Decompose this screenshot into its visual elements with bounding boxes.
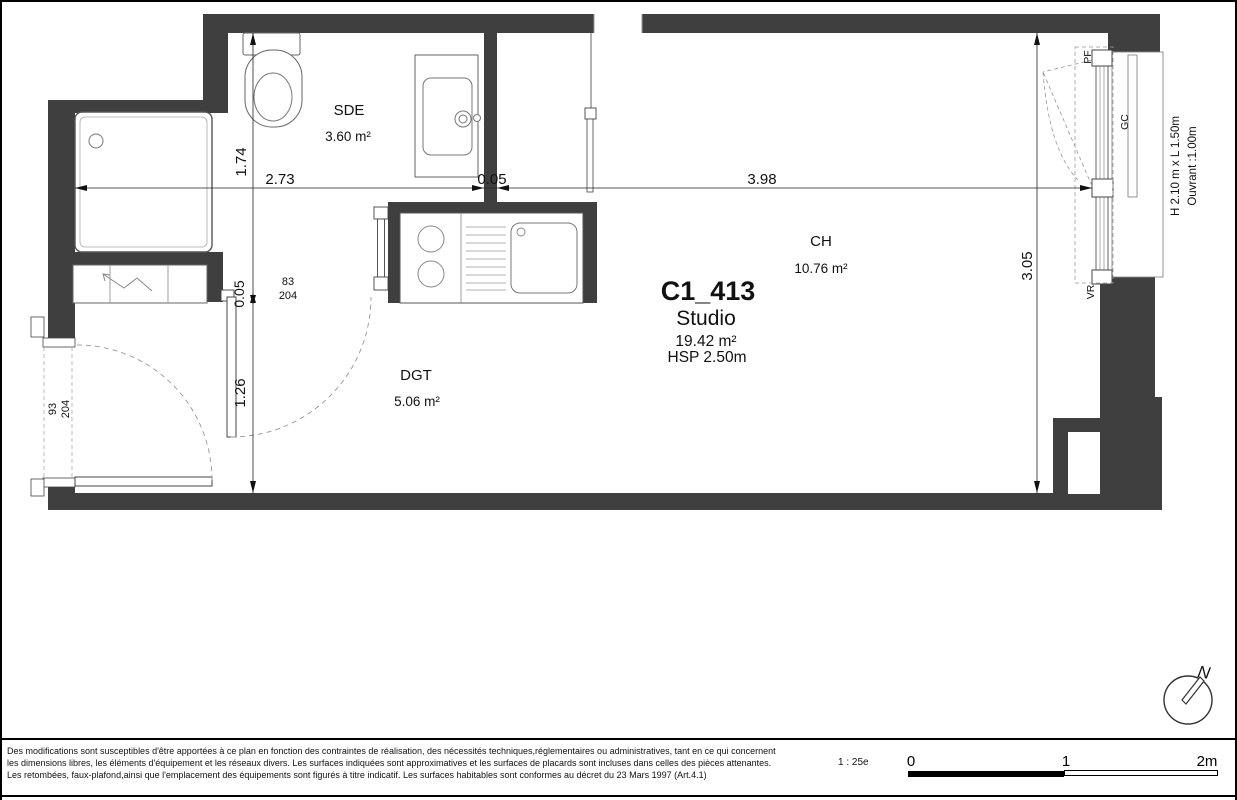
scale-bar-empty <box>1064 770 1218 776</box>
washbasin <box>415 55 481 177</box>
window-frame-upper <box>1096 66 1108 179</box>
unit-id: C1_413 <box>661 276 756 306</box>
interior-door-leaf <box>227 297 236 437</box>
corridor-partition <box>585 33 596 192</box>
sheet-border-top <box>0 0 1237 2</box>
wall-top-right-corner <box>1108 14 1160 53</box>
entrance-door-leaf <box>75 477 212 486</box>
wall-top <box>203 14 1108 33</box>
disclaimer-line-1: Des modifications sont susceptibles d'êt… <box>7 745 776 757</box>
wall-right-below-window <box>1100 277 1155 403</box>
room-label-dgt: DGT <box>400 367 432 384</box>
floorplan-sheet: N SDE 3.60 m² DGT 5.06 m² CH 10.76 m² C1… <box>0 0 1237 800</box>
scale-bar-filled <box>908 771 1064 777</box>
scale-tick-0: 0 <box>907 753 915 770</box>
door-interior-width: 83 <box>282 276 294 288</box>
kitchenette <box>374 207 583 303</box>
scale-ratio-label: 1 : 25e <box>838 757 869 768</box>
wall-below-shower <box>48 252 222 265</box>
dim-h-wall: 0.05 <box>231 280 247 307</box>
disclaimer-text: Des modifications sont susceptibles d'êt… <box>7 745 776 782</box>
dim-w-ch: 3.98 <box>747 171 776 188</box>
unit-type: Studio <box>676 307 736 330</box>
footer-divider <box>0 738 1237 740</box>
kitchen-sink <box>511 223 577 293</box>
north-label: N <box>1196 662 1212 683</box>
window-label-gc: GC <box>1119 114 1131 130</box>
north-arrow: N <box>1164 662 1212 724</box>
sheet-border-left <box>0 0 2 800</box>
door-interior-height: 204 <box>279 290 297 302</box>
wall-kitchen-left <box>388 202 400 303</box>
toilet <box>243 33 302 127</box>
window-label-pf: PF <box>1082 50 1094 63</box>
duct-opening <box>1068 432 1100 494</box>
window-opening: Ouvrant :1.00m <box>1187 126 1199 205</box>
room-area-sde: 3.60 m² <box>325 129 371 144</box>
entrance-door-swing <box>77 345 212 480</box>
wall-kitchen-right <box>583 202 597 303</box>
window-frame-lower <box>1096 197 1108 270</box>
dim-h-ch: 3.05 <box>1019 251 1036 280</box>
wall-kitchen-top <box>388 202 597 213</box>
wall-bottom <box>48 493 1162 510</box>
unit-area: 19.42 m² <box>675 333 736 350</box>
room-area-dgt: 5.06 m² <box>394 394 440 409</box>
corridor-door-leaf <box>587 119 593 192</box>
disclaimer-line-2: les dimensions libres, les éléments d'éq… <box>7 757 776 769</box>
window-label-vr: VR <box>1085 284 1097 299</box>
dim-w-sde: 2.73 <box>265 171 294 188</box>
room-label-sde: SDE <box>334 102 365 119</box>
scale-tick-1: 1 <box>1062 753 1070 770</box>
door-entrance-width: 93 <box>47 403 59 415</box>
kitchen-door-frame <box>374 207 388 290</box>
sheet-border-bottom <box>0 795 1237 797</box>
interior-door-swing <box>231 297 371 437</box>
dim-h-entry: 1.26 <box>232 378 249 407</box>
scale-tick-2m: 2m <box>1197 753 1218 770</box>
closet <box>73 265 207 303</box>
disclaimer-line-3: Les retombées, faux-plafond,ainsi que l'… <box>7 769 776 781</box>
wall-step-left <box>203 14 228 113</box>
interior-door <box>221 290 371 437</box>
walls <box>48 14 1162 510</box>
wall-top-beam-gap <box>594 14 642 33</box>
wall-left-exterior <box>48 100 75 338</box>
window-size: H 2.10 m x L 1.50m <box>1170 116 1182 216</box>
room-area-ch: 10.76 m² <box>794 261 848 276</box>
dim-h-sde: 1.74 <box>233 147 250 176</box>
unit-ceiling-height: HSP 2.50m <box>668 349 747 366</box>
window <box>1043 47 1163 284</box>
room-label-ch: CH <box>810 233 832 250</box>
window-recess <box>1112 52 1163 277</box>
floor-plan-svg: N SDE 3.60 m² DGT 5.06 m² CH 10.76 m² C1… <box>0 0 1237 800</box>
door-entrance-height: 204 <box>60 400 72 418</box>
shower-tray <box>75 112 212 252</box>
dim-w-wall: 0.05 <box>477 171 506 188</box>
